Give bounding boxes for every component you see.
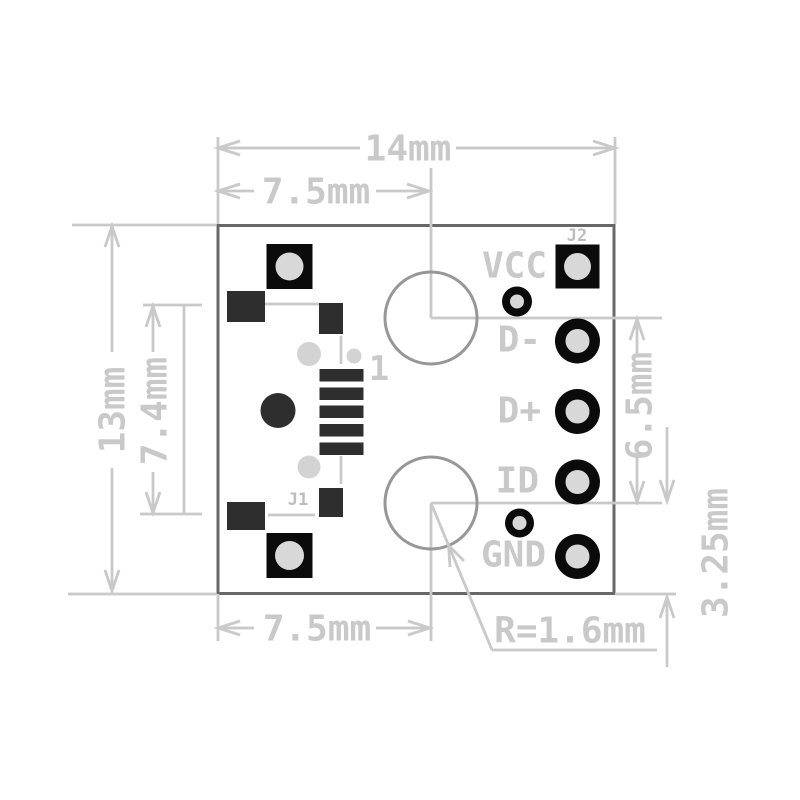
usb-pin-pad-5 — [320, 443, 364, 456]
dim-text-radius: R=1.6mm — [494, 611, 646, 652]
connector-via-dot — [261, 393, 296, 428]
via-bottom-hole — [513, 516, 527, 530]
pin-label-id: ID — [496, 461, 539, 502]
dim-text-74: 7.4mm — [135, 357, 176, 465]
shield-pad-upper — [319, 303, 343, 334]
usb-pin-pad-4 — [320, 424, 364, 437]
shield-tab-upper-left — [227, 291, 265, 322]
pin1-marker: 1 — [369, 349, 389, 389]
header-pad-vcc-hole — [564, 253, 591, 280]
mount-pad-top-left-hole — [276, 253, 304, 281]
micro-usb-breakout-dimension-drawing: VCC D- D+ ID GND J2 J1 1 14mm 7.5mm 13mm… — [0, 0, 800, 800]
pin-label-vcc: VCC — [482, 246, 547, 287]
alignment-post-bottom — [298, 456, 321, 479]
dim-text-65: 6.5mm — [620, 352, 661, 460]
pin-label-dplus: D+ — [498, 391, 541, 432]
mount-pad-bottom-left-hole — [275, 541, 304, 570]
alignment-dot — [347, 349, 362, 364]
header-pad-gnd-hole — [566, 545, 590, 569]
dim-text-13mm: 13mm — [93, 367, 134, 454]
usb-pin-pad-1 — [320, 369, 364, 382]
usb-pin-pad-2 — [320, 388, 364, 401]
dim-text-75bot: 7.5mm — [263, 609, 371, 650]
dim-text-75top: 7.5mm — [262, 172, 370, 213]
refdes-j2: J2 — [567, 226, 587, 246]
via-top-hole — [510, 295, 524, 309]
drawing-canvas: VCC D- D+ ID GND J2 J1 1 14mm 7.5mm 13mm… — [0, 0, 800, 800]
refdes-j1: J1 — [288, 490, 308, 510]
pin-label-gnd: GND — [481, 535, 546, 576]
dim-text-325: 3.25mm — [696, 488, 737, 618]
usb-pin-pad-3 — [320, 406, 364, 419]
shield-pad-lower — [319, 488, 343, 517]
pin-label-dminus: D- — [498, 320, 541, 361]
alignment-post-top — [297, 342, 321, 366]
header-pad-id-hole — [566, 470, 590, 494]
header-pad-dplus-hole — [566, 400, 590, 424]
shield-tab-lower-left — [227, 502, 265, 530]
dim-text-14mm: 14mm — [365, 129, 452, 170]
header-pad-dminus-hole — [566, 329, 590, 353]
